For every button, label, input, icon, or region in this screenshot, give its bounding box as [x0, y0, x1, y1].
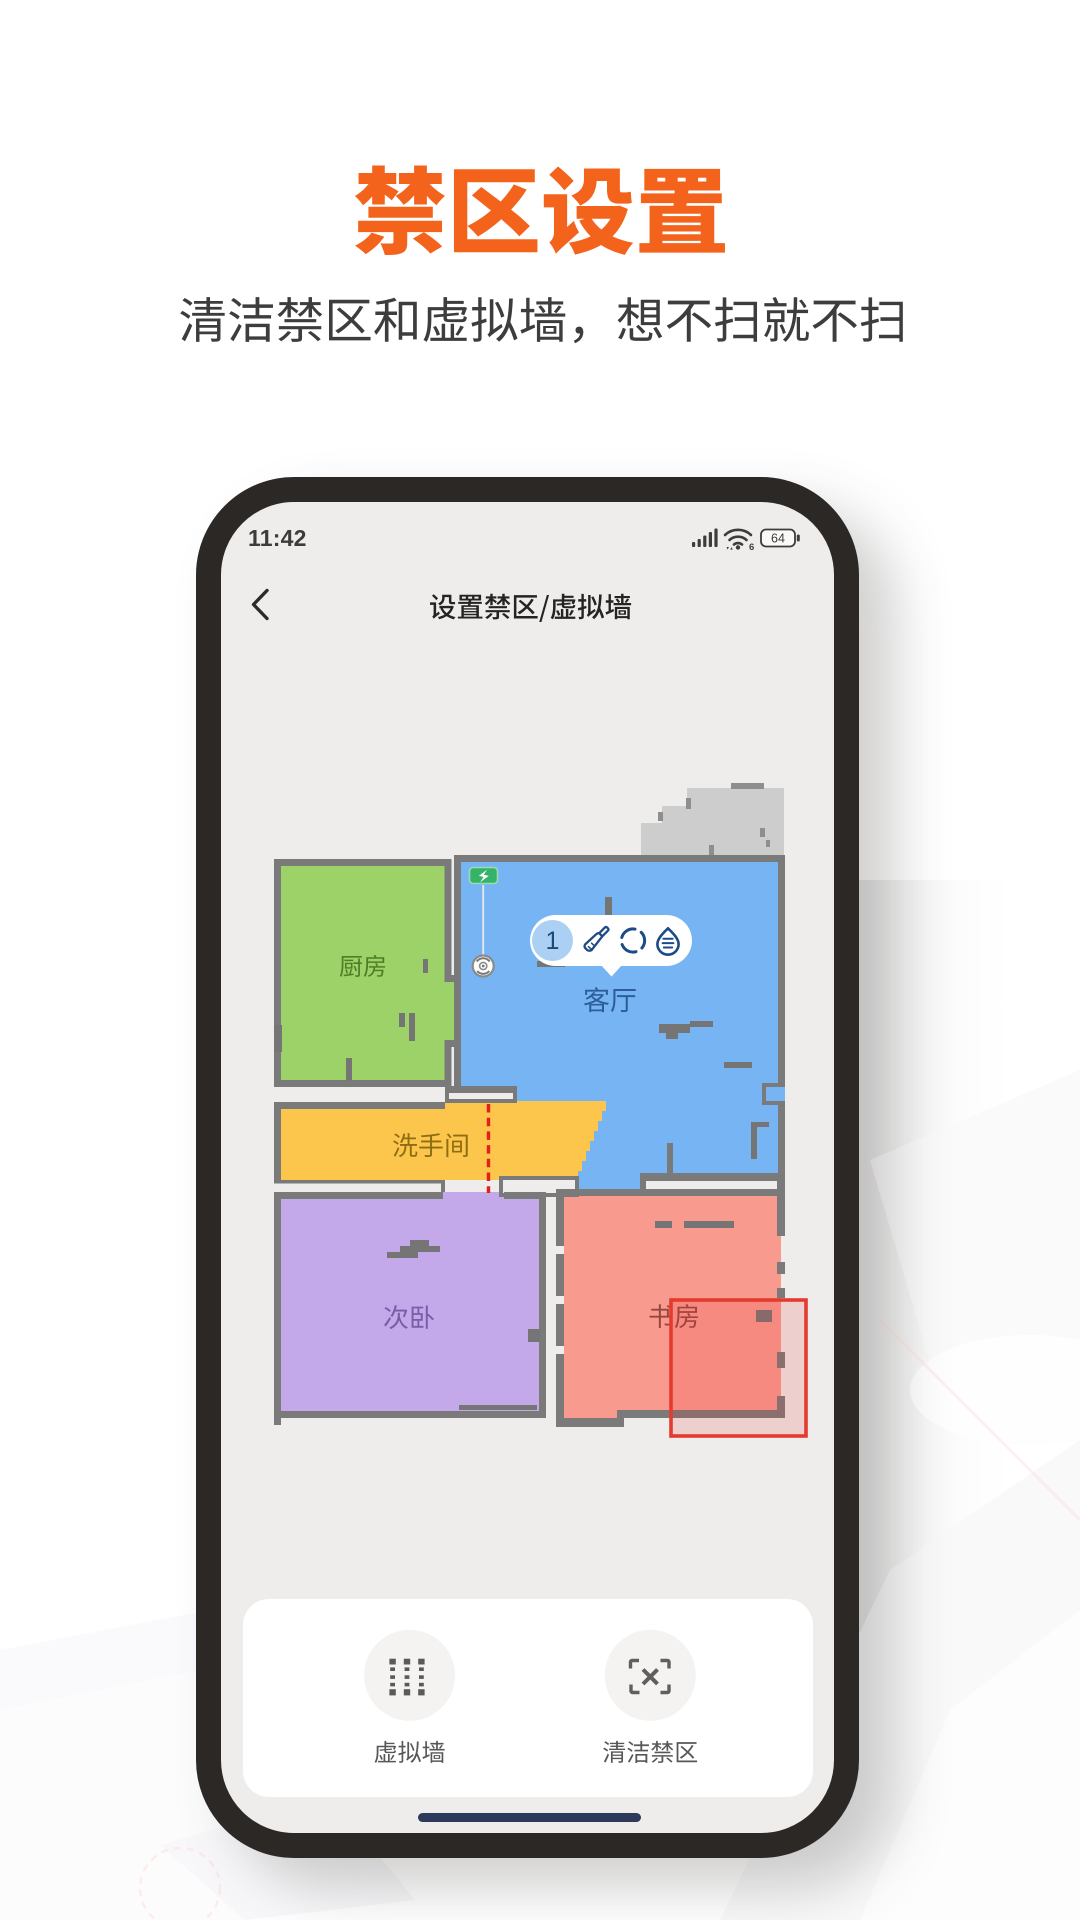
svg-text:6: 6 — [749, 542, 754, 551]
svg-text:64: 64 — [771, 532, 785, 546]
svg-text:1: 1 — [546, 927, 560, 955]
